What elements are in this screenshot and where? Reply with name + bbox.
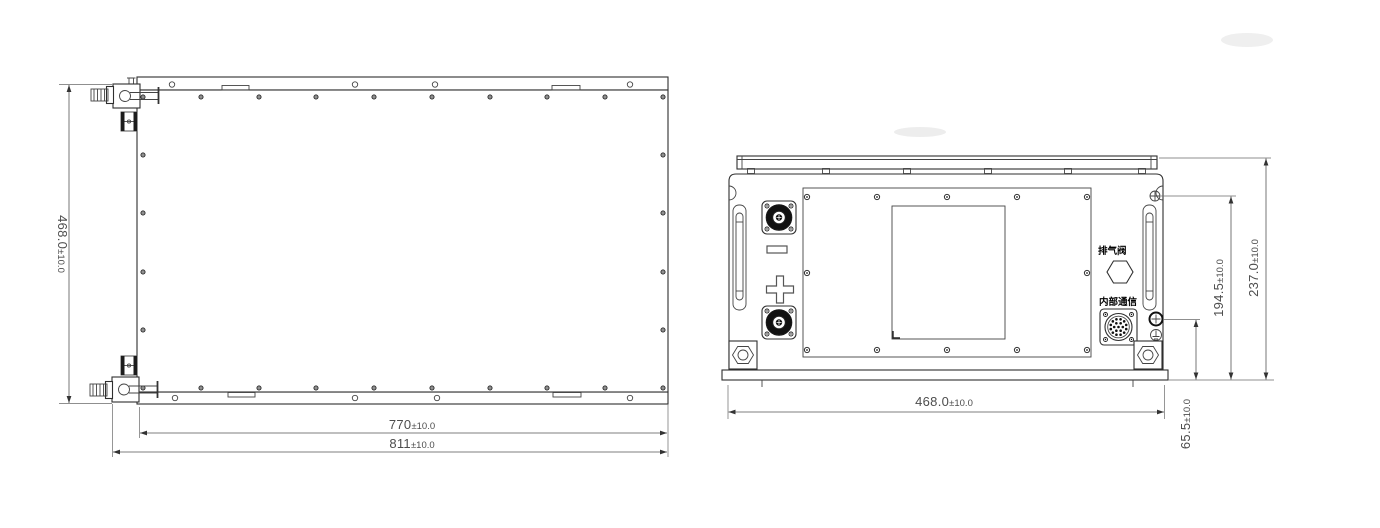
- dim-text-468-front: 468.0±10.0: [915, 394, 973, 409]
- dim-front-width: 468.0±10.0: [728, 385, 1165, 419]
- side-valve-bottom: [121, 356, 137, 375]
- mounting-foot-right: [1134, 341, 1162, 369]
- side-valve-top: [121, 112, 137, 131]
- dim-top-view-height: 468.0±10.0: [55, 85, 112, 404]
- dim-text-811: 811±10.0: [389, 436, 434, 451]
- dim-text-237: 237.0±10.0: [1246, 239, 1261, 297]
- exhaust-valve-label: 排气阀: [1098, 245, 1127, 257]
- internal-comm-label: 内部通信: [1099, 296, 1138, 308]
- paper-smudge: [1221, 33, 1273, 47]
- paper-smudge: [894, 127, 946, 137]
- dim-front-heights: 237.0±10.0 194.5±10.0 65.5±10.0: [1159, 158, 1274, 449]
- top-view: 468.0±10.0 770±10.0 811±10.0: [55, 77, 668, 457]
- dim-text-468-left: 468.0±10.0: [55, 215, 70, 273]
- top-flange: [137, 77, 668, 90]
- drawing-canvas: 468.0±10.0 770±10.0 811±10.0: [0, 0, 1380, 528]
- front-body-outline: [729, 174, 1163, 370]
- corner-plus-screw: [1150, 191, 1160, 201]
- technical-drawing-sheet: 468.0±10.0 770±10.0 811±10.0: [0, 0, 1380, 528]
- enclosure-body-outline: [137, 90, 668, 392]
- dim-text-770: 770±10.0: [389, 417, 435, 432]
- dim-text-65: 65.5±10.0: [1178, 399, 1193, 449]
- top-lip: [737, 156, 1157, 169]
- front-view: 排气阀 内部通信: [722, 156, 1274, 449]
- mounting-foot-left: [729, 341, 757, 369]
- dim-text-194: 194.5±10.0: [1211, 259, 1226, 317]
- base-plate: [722, 370, 1168, 380]
- base-ticks: [762, 380, 1133, 387]
- bottom-flange: [137, 392, 668, 404]
